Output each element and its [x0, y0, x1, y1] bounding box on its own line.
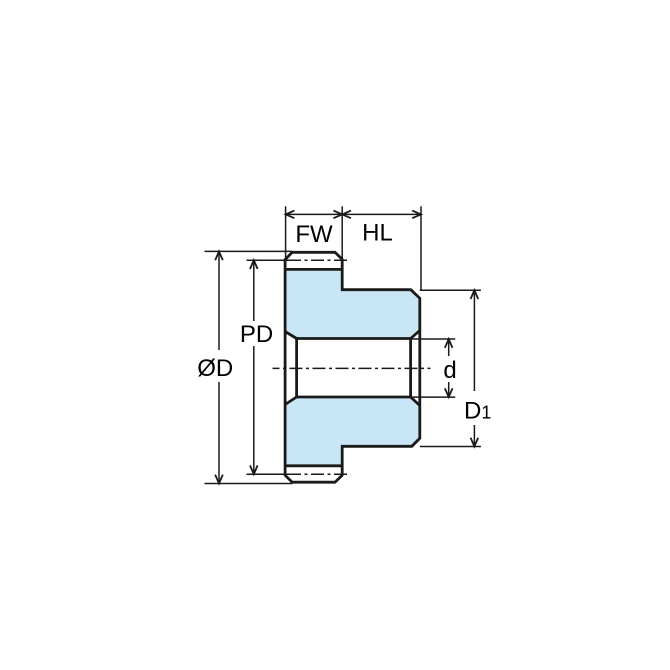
svg-text:PD: PD: [240, 321, 273, 348]
svg-text:FW: FW: [295, 221, 333, 248]
svg-text:D1: D1: [464, 398, 491, 425]
svg-text:ØD: ØD: [197, 355, 233, 382]
svg-text:HL: HL: [362, 220, 393, 247]
svg-text:d: d: [443, 357, 456, 384]
